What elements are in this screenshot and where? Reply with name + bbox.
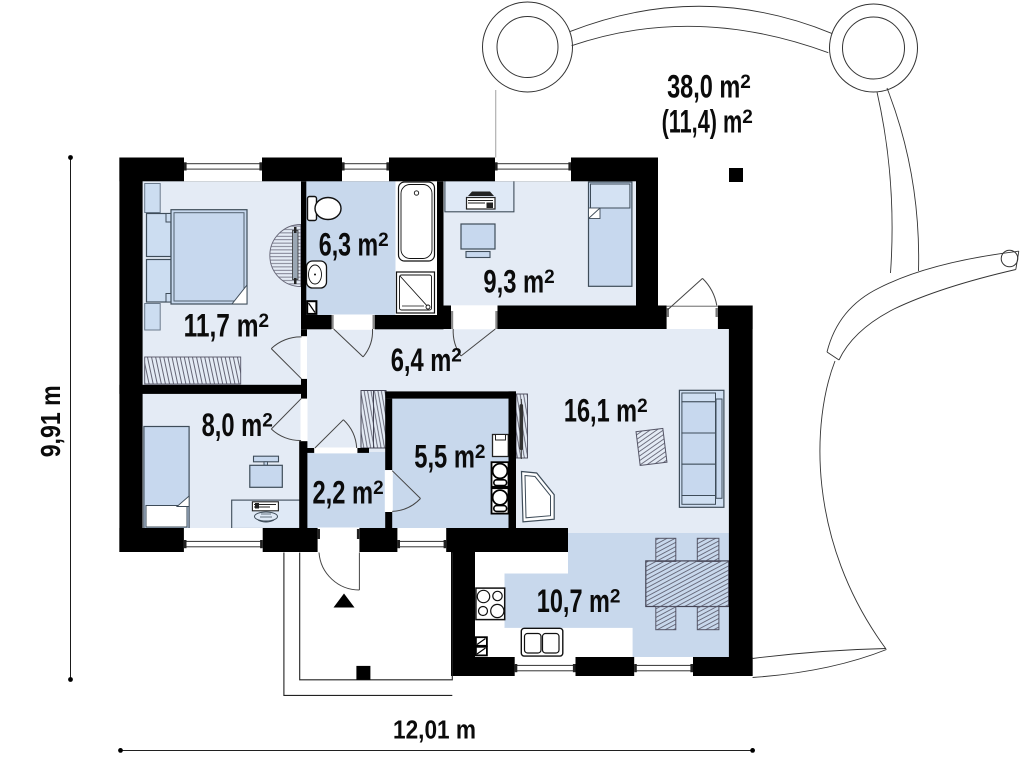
svg-text:11,7 m2: 11,7 m2 xyxy=(184,308,269,344)
svg-text:5,5 m2: 5,5 m2 xyxy=(414,439,485,475)
svg-text:9,3 m2: 9,3 m2 xyxy=(483,263,554,299)
svg-text:12,01 m: 12,01 m xyxy=(393,717,476,745)
svg-text:9,91 m: 9,91 m xyxy=(35,385,66,457)
svg-text:8,0 m2: 8,0 m2 xyxy=(202,407,273,443)
svg-text:10,7 m2: 10,7 m2 xyxy=(537,583,621,619)
svg-text:(11,4) m2: (11,4) m2 xyxy=(662,104,753,140)
svg-text:6,4 m2: 6,4 m2 xyxy=(391,342,462,378)
svg-text:2,2 m2: 2,2 m2 xyxy=(313,474,384,510)
svg-text:16,1 m2: 16,1 m2 xyxy=(564,392,648,428)
svg-text:38,0 m2: 38,0 m2 xyxy=(667,68,751,104)
